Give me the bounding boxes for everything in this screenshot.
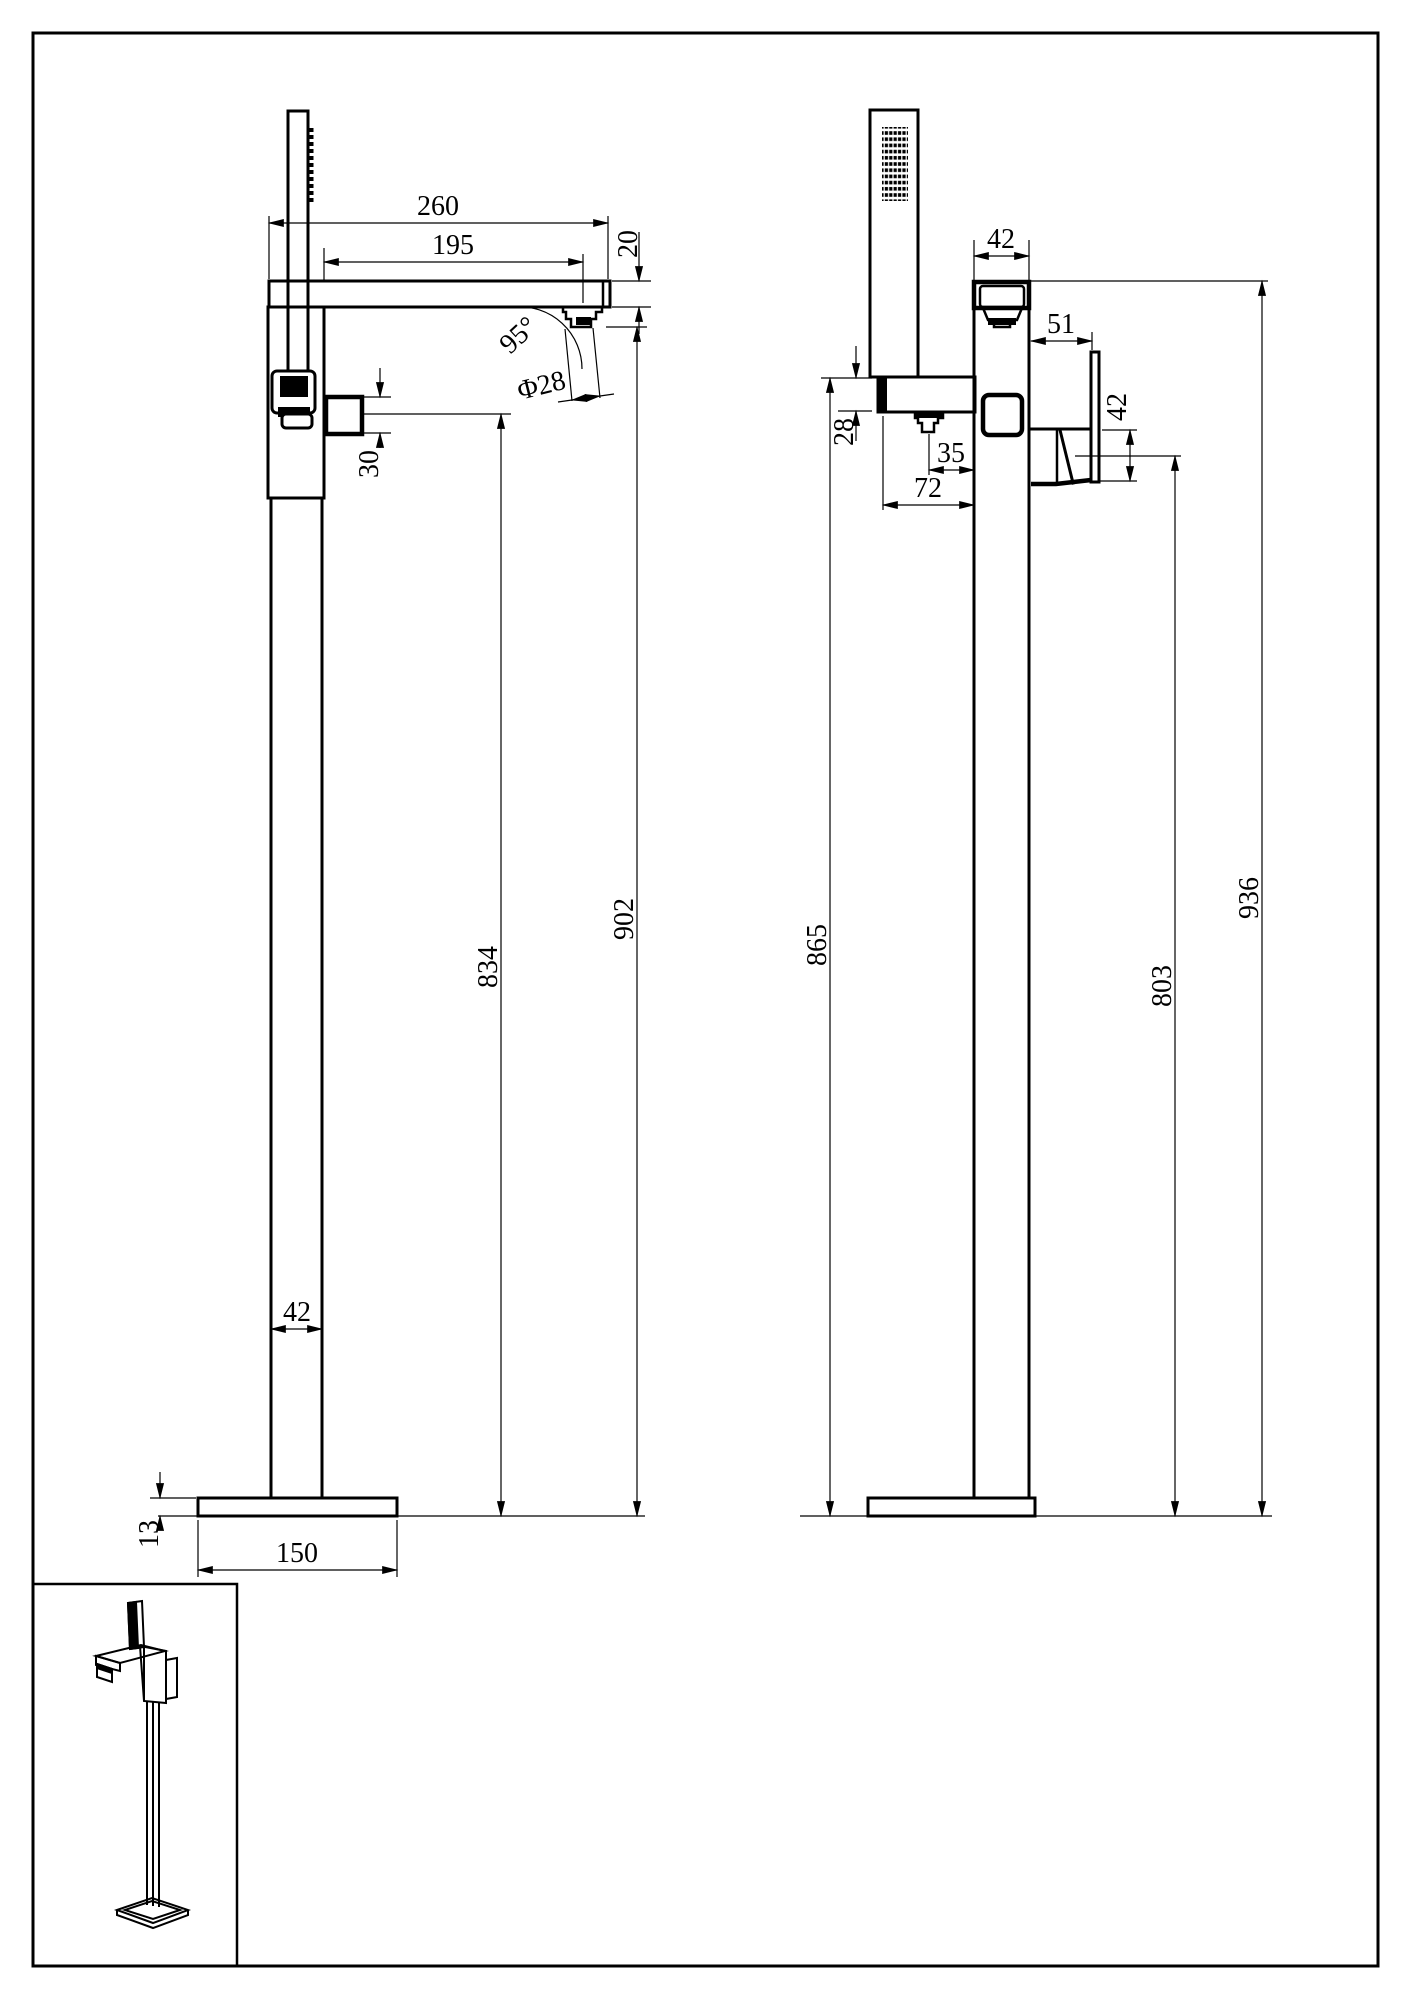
dim-label-nozzle-offset: 35 [937,438,965,469]
paper-background [0,0,1414,2000]
technical-drawing: 260 195 20 95° Φ28 [0,0,1414,2000]
dim-label-holder-reach: 72 [914,473,942,504]
dim-label-column-width: 42 [283,1297,311,1328]
dim-label-base-width: 150 [276,1538,318,1569]
spray-nozzle-grid [882,127,908,201]
dim-label-spout-to-floor: 902 [609,898,640,940]
dim-label-holder-to-floor: 865 [802,924,833,966]
dim-label-handle-to-floor: 803 [1147,965,1178,1007]
dim-label-side-outlet-height: 30 [354,450,385,478]
dim-label-handle-reach: 51 [1047,309,1075,340]
dim-label-spout-width: 42 [987,224,1015,255]
dim-label-handle-height: 42 [1102,393,1133,421]
dim-label-holder-height: 28 [829,418,860,446]
dim-label-base-thickness: 13 [134,1520,165,1548]
dim-label-outlet-to-floor: 834 [473,946,504,988]
dim-label-arm-thickness: 20 [613,230,644,258]
drawing-sheet: 260 195 20 95° Φ28 [0,0,1414,2000]
dim-label-spout-reach: 195 [432,230,474,261]
dim-label-arm-overall: 260 [417,191,459,222]
dim-label-overall-height: 936 [1234,877,1265,919]
